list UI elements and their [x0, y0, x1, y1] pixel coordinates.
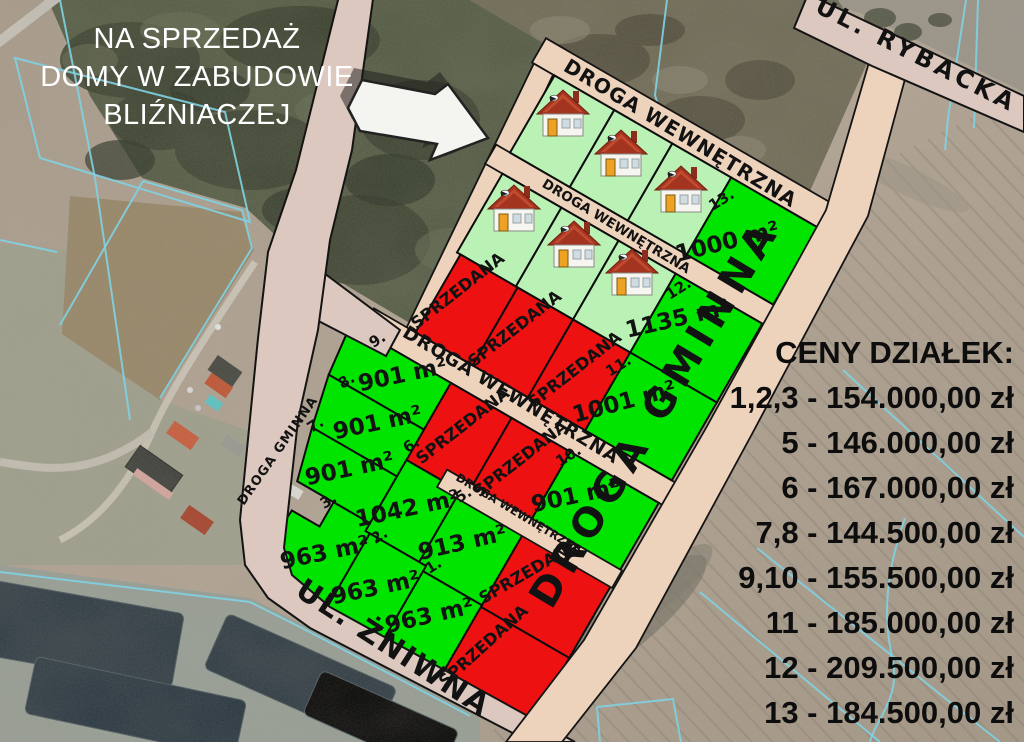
- real-estate-map: UL. RYBACKA DROGA GMINNA DROGA GMINNA UL…: [0, 0, 1024, 742]
- price-row: 11 - 185.000,00 zł: [730, 600, 1014, 645]
- sale-title-line1: NA SPRZEDAŻ: [8, 20, 386, 58]
- price-list-heading: CENY DZIAŁEK:: [730, 330, 1014, 375]
- price-row: 7,8 - 144.500,00 zł: [730, 510, 1014, 555]
- price-row: 5 - 146.000,00 zł: [730, 420, 1014, 465]
- price-row: 13 - 184.500,00 zł: [730, 690, 1014, 735]
- sale-title-line2: DOMY W ZABUDOWIE: [8, 58, 386, 96]
- sale-title-line3: BLIŹNIACZEJ: [8, 96, 386, 134]
- price-list: CENY DZIAŁEK: 1,2,3 - 154.000,00 zł 5 - …: [730, 330, 1014, 735]
- price-row: 9,10 - 155.500,00 zł: [730, 555, 1014, 600]
- price-row: 6 - 167.000,00 zł: [730, 465, 1014, 510]
- price-row: 1,2,3 - 154.000,00 zł: [730, 375, 1014, 420]
- price-row: 12 - 209.500,00 zł: [730, 645, 1014, 690]
- sale-title: NA SPRZEDAŻ DOMY W ZABUDOWIE BLIŹNIACZEJ: [8, 20, 386, 134]
